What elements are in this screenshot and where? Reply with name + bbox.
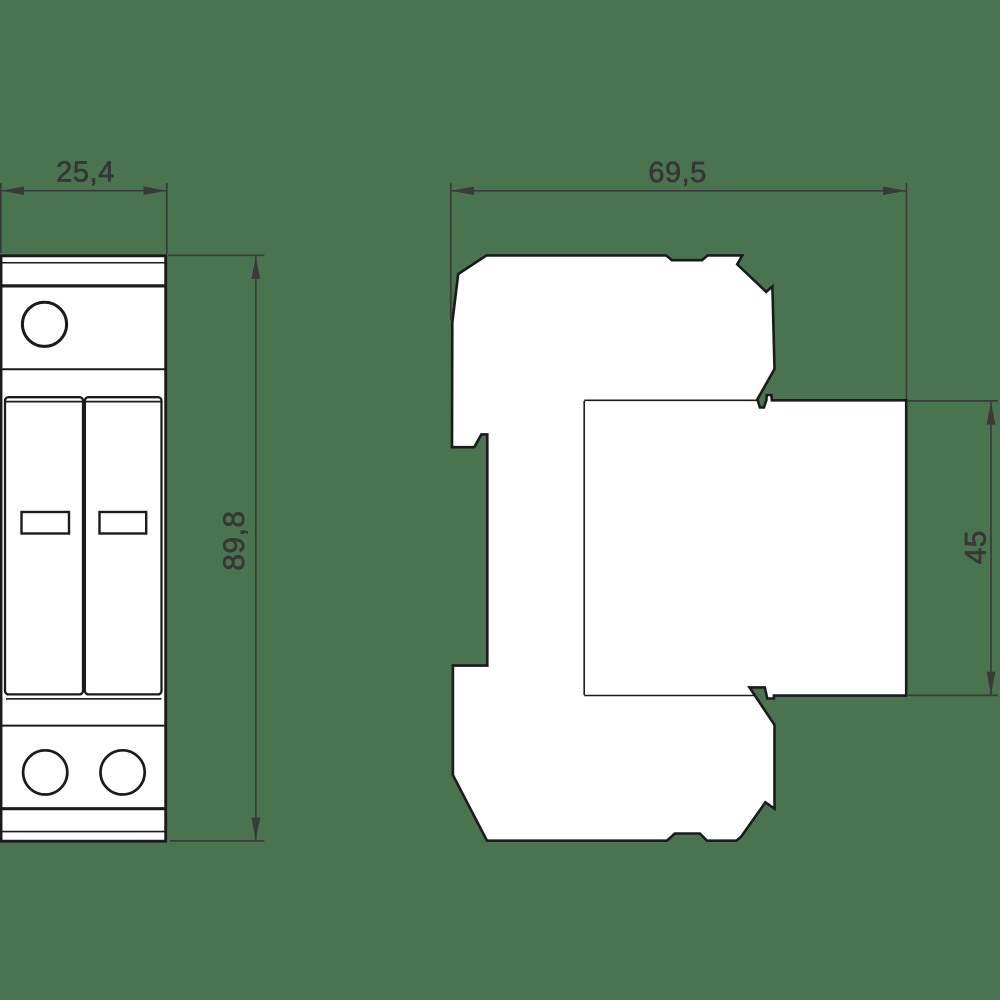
svg-text:89,8: 89,8 <box>218 510 251 570</box>
svg-text:25,4: 25,4 <box>56 156 114 188</box>
svg-text:45: 45 <box>960 530 993 564</box>
svg-text:69,5: 69,5 <box>648 157 706 189</box>
